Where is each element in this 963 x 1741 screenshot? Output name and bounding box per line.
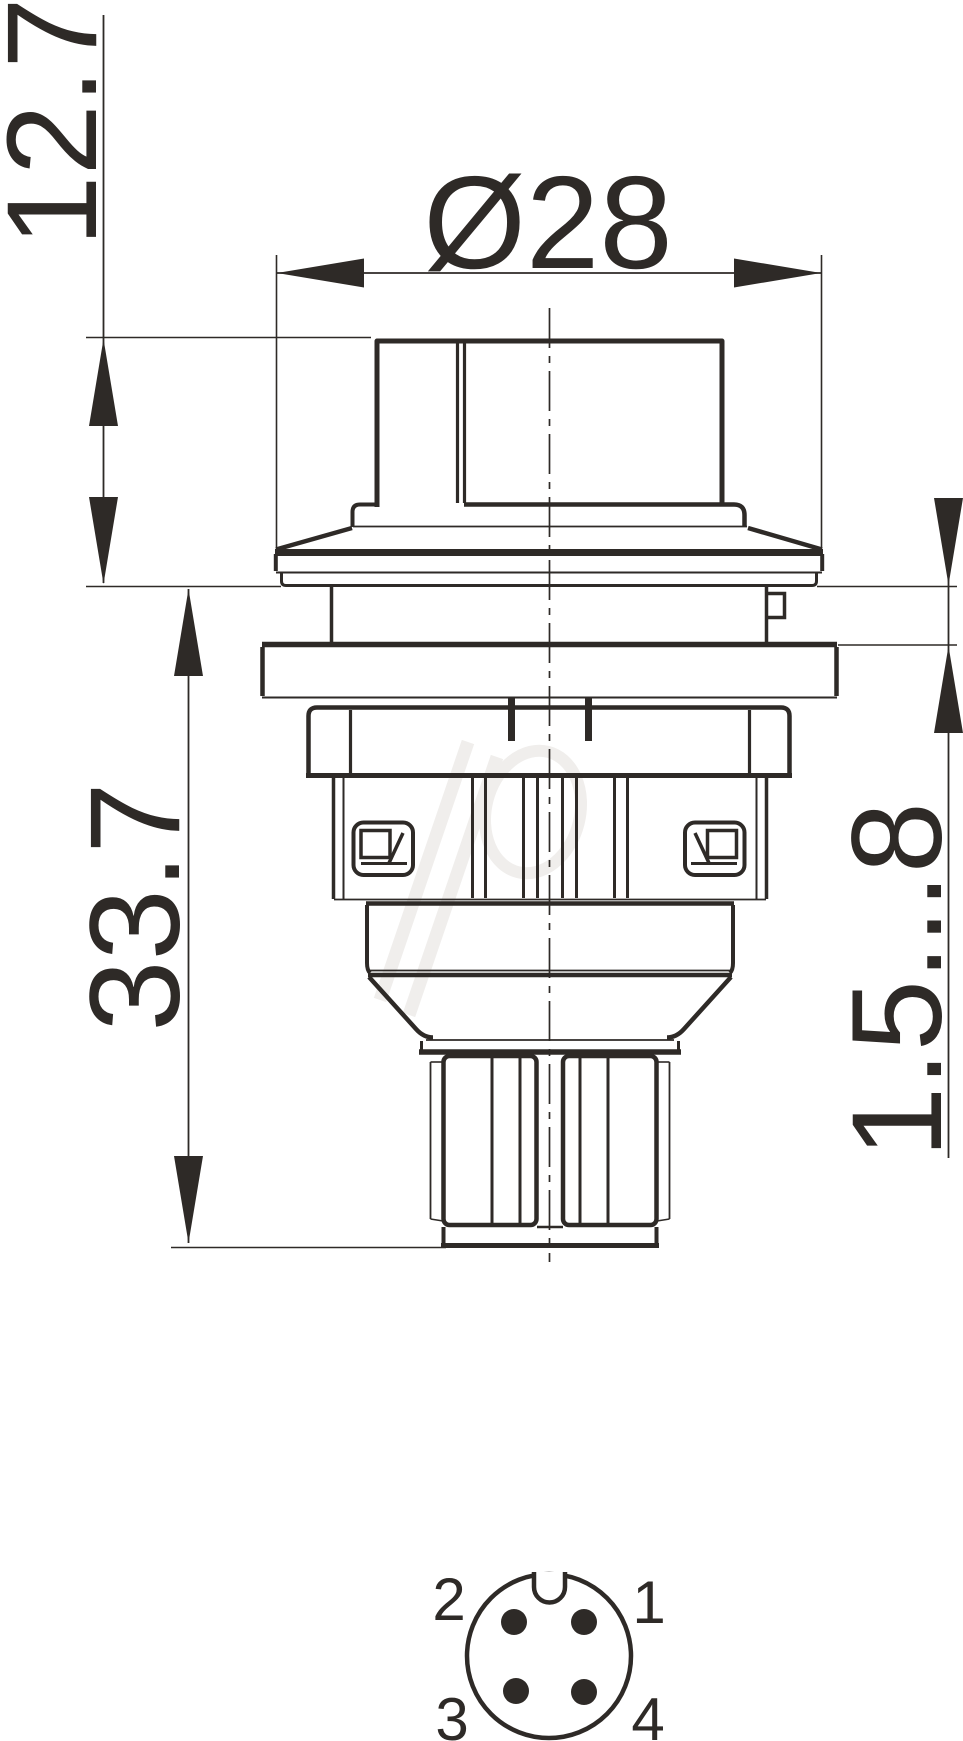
pin-dot-2	[501, 1609, 527, 1635]
dimension-panel-range: 1.5...8	[817, 498, 963, 1158]
anti-rotation-notch	[767, 594, 785, 618]
dim-label-panel-range: 1.5...8	[826, 802, 963, 1158]
dim-arrow-up	[174, 589, 203, 676]
pin-label-4: 4	[631, 1686, 664, 1741]
section-side	[730, 905, 733, 973]
dim-arrow-left	[277, 259, 364, 288]
dim-label-diameter: Ø28	[423, 149, 673, 296]
pin-dot-3	[503, 1678, 529, 1704]
dimension-total-height: 33.7	[64, 589, 446, 1248]
pin-dot-4	[571, 1679, 597, 1705]
knurl-connector	[431, 1219, 444, 1221]
latch-window	[708, 831, 737, 858]
pin-dot-1	[571, 1609, 597, 1635]
dim-arrow-down	[89, 497, 118, 584]
pin-label-1: 1	[632, 1569, 665, 1636]
dim-arrow-down	[934, 498, 963, 585]
selector-switch-drawing: 12.7 Ø28 33.7 1.5...8 2 1 3 4	[0, 0, 963, 1741]
dim-arrow-up	[934, 646, 963, 733]
dim-label-knob-height: 12.7	[0, 0, 124, 247]
knurl-outline	[444, 1056, 537, 1225]
knob-flange	[464, 505, 745, 528]
upper-housing	[332, 587, 785, 645]
pin-label-2: 2	[432, 1566, 465, 1633]
taper-side	[667, 977, 731, 1038]
selector-knob	[353, 341, 745, 527]
pin-label-3: 3	[435, 1686, 468, 1741]
knurl-connector	[657, 1219, 670, 1221]
dim-arrow-right	[734, 259, 821, 288]
technical-drawing-page: 12.7 Ø28 33.7 1.5...8 2 1 3 4	[0, 0, 963, 1741]
pin-diagram: 2 1 3 4	[432, 1566, 665, 1741]
bezel-shoulder-left	[276, 528, 352, 550]
latch-window	[361, 831, 390, 858]
connector-knurl-left	[431, 1056, 537, 1225]
latch-left	[354, 823, 414, 876]
section-side	[367, 905, 370, 973]
dim-arrow-down	[174, 1156, 203, 1243]
connector-knurl-right	[563, 1056, 670, 1225]
dimension-knob-height: 12.7	[0, 0, 371, 587]
bezel-shoulder-right	[748, 528, 822, 550]
knurl-outline	[563, 1056, 657, 1225]
knob-step-left	[353, 505, 378, 528]
dim-label-total-height: 33.7	[64, 782, 207, 1031]
keyway-notch	[534, 1572, 565, 1602]
dim-arrow-up	[89, 339, 118, 426]
latch-right	[685, 823, 745, 876]
